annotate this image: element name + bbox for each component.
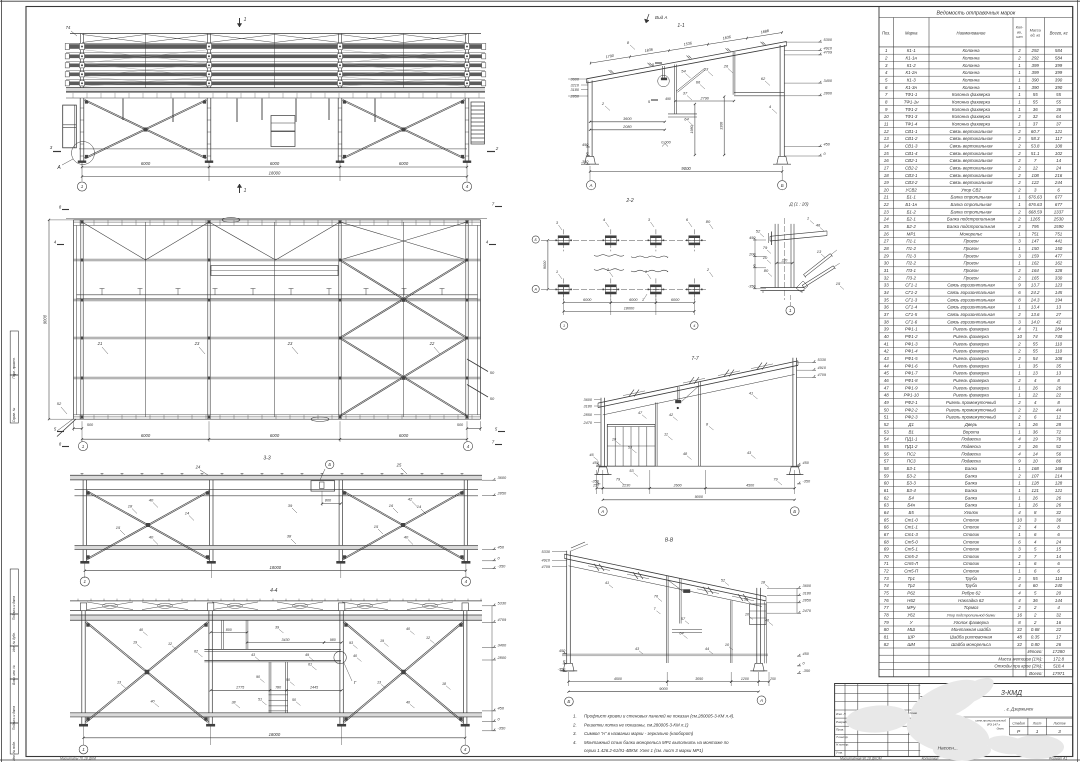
svg-text:ТФ1-1: ТФ1-1 [905,92,918,97]
svg-text:Балка подстропильная: Балка подстропильная [947,224,996,229]
svg-text:Изм. Л: Изм. Л [836,712,846,716]
svg-text:Ребро 62: Ребро 62 [962,591,981,596]
svg-text:Колонна: Колонна [962,70,980,75]
svg-text:Б3-2: Б3-2 [907,473,917,478]
svg-text:17280: 17280 [1052,649,1065,654]
svg-text:250: 250 [769,677,776,681]
svg-text:80: 80 [764,268,769,273]
svg-text:Колонна: Колонна [962,85,980,90]
svg-text:Монтажный стык балки монорельс: Монтажный стык балки монорельса МР1 выпо… [584,740,729,745]
svg-text:2: 2 [1017,158,1021,163]
svg-text:6000: 6000 [399,161,409,166]
svg-text:во,: во, [1017,30,1022,34]
svg-text:Ригель фахверка: Ригель фахверка [953,385,989,390]
svg-text:ШМ: ШМ [907,642,915,647]
svg-text:12: 12 [1033,165,1038,170]
svg-text:3-КМД: 3-КМД [1001,690,1022,697]
svg-text:ТФ1-1н: ТФ1-1н [904,100,919,105]
svg-text:Столик: Столик [963,532,980,537]
svg-text:19: 19 [133,641,137,645]
svg-text:2850: 2850 [570,94,580,98]
svg-text:584: 584 [1055,56,1063,61]
svg-text:Насосн...: Насосн... [938,746,958,752]
svg-text:Столик: Столик [963,569,980,574]
svg-text:4: 4 [465,579,468,584]
svg-text:Наименование: Наименование [957,30,987,35]
svg-text:10: 10 [1033,459,1038,464]
svg-text:37: 37 [1056,121,1061,126]
svg-text:Связь горизонтальная: Связь горизонтальная [947,297,995,302]
svg-text:17: 17 [884,165,889,170]
svg-text:49: 49 [305,653,309,657]
svg-text:4910: 4910 [542,559,551,563]
svg-text:518.4: 518.4 [1053,664,1065,669]
svg-text:159: 159 [1032,253,1040,258]
svg-text:44: 44 [884,363,889,368]
svg-text:64: 64 [884,510,889,515]
svg-text:50: 50 [490,370,495,375]
svg-text:21: 21 [883,195,889,200]
svg-text:3.: 3. [573,731,577,736]
svg-text:К1-2н: К1-2н [906,70,918,75]
svg-text:2800: 2800 [823,92,833,96]
svg-text:13.4: 13.4 [1031,305,1040,310]
svg-text:Листов: Листов [1052,721,1065,725]
svg-text:1: 1 [642,297,644,302]
svg-text:2850: 2850 [802,599,812,603]
svg-text:81: 81 [884,635,889,640]
svg-text:Связь горизонтальная: Связь горизонтальная [947,290,995,295]
svg-text:МРу: МРу [907,605,917,610]
svg-text:Н.контр.: Н.контр. [836,743,849,747]
svg-text:Ригель промежуточный: Ригель промежуточный [946,407,997,412]
svg-text:9000: 9000 [695,495,704,499]
svg-text:6000: 6000 [270,433,280,438]
svg-text:32: 32 [1056,613,1061,618]
svg-text:24: 24 [1055,539,1061,544]
svg-text:37: 37 [683,91,688,96]
svg-text:2: 2 [1017,554,1021,559]
svg-text:Столик: Столик [963,547,980,552]
svg-text:К1-1: К1-1 [907,48,916,53]
svg-text:1-1: 1-1 [677,23,684,29]
svg-text:121: 121 [1032,488,1040,493]
svg-text:477: 477 [1055,253,1063,258]
svg-text:А: А [56,165,61,171]
svg-text:Кол-: Кол- [1016,26,1024,30]
svg-text:12: 12 [884,129,889,134]
svg-text:П1-3: П1-3 [906,253,916,258]
svg-text:500: 500 [457,423,464,427]
svg-text:5300: 5300 [824,38,833,42]
svg-text:3180: 3180 [584,404,593,408]
svg-text:390: 390 [1055,85,1063,90]
svg-text:Тормоз: Тормоз [964,605,979,610]
svg-text:2: 2 [1017,378,1021,383]
svg-text:Справ. №: Справ. № [12,407,16,422]
svg-text:19: 19 [380,639,384,643]
svg-text:3300: 3300 [719,122,723,130]
svg-text:РФ1-4: РФ1-4 [905,349,918,354]
svg-text:Утв.: Утв. [836,750,843,754]
svg-text:13.6: 13.6 [1031,312,1040,317]
svg-text:П1-2: П1-2 [906,246,916,251]
svg-text:Вид А: Вид А [655,15,668,20]
svg-text:330: 330 [1055,275,1063,280]
svg-text:Б3-3: Б3-3 [907,481,917,486]
svg-text:26: 26 [1032,422,1038,427]
svg-text:Колонна фахверка: Колонна фахверка [952,92,991,97]
svg-text:78: 78 [884,613,889,618]
svg-text:-350: -350 [498,726,507,731]
svg-text:27: 27 [883,239,889,244]
svg-text:У62: У62 [907,613,915,618]
svg-text:Инв. № подл.: Инв. № подл. [12,741,16,761]
svg-text:Связь вертикальная: Связь вертикальная [950,173,994,178]
svg-text:50: 50 [490,396,495,401]
svg-text:РФ1-10: РФ1-10 [904,393,920,398]
svg-text:-350: -350 [803,669,811,673]
svg-text:Б1-1: Б1-1 [907,195,917,200]
svg-text:73: 73 [884,576,889,581]
svg-text:22: 22 [1032,407,1038,412]
svg-text:42: 42 [1056,319,1061,324]
svg-text:Б3-1: Б3-1 [907,466,917,471]
svg-text:20: 20 [1055,591,1061,596]
svg-text:450: 450 [803,652,810,656]
svg-text:РФ2-3: РФ2-3 [905,415,918,420]
svg-text:Т.контр.: Т.контр. [836,735,849,739]
svg-text:780: 780 [275,686,281,690]
svg-text:Шайба рихтовочная: Шайба рихтовочная [950,635,993,640]
svg-text:121: 121 [1055,129,1063,134]
svg-text:77: 77 [884,605,889,610]
svg-text:66: 66 [696,80,701,85]
svg-text:3210: 3210 [571,83,580,87]
svg-text:. г. Дзержинск: . г. Дзержинск [1004,707,1034,712]
svg-text:21: 21 [97,341,103,346]
svg-text:28: 28 [883,246,889,251]
svg-text:399: 399 [1032,63,1040,68]
svg-text:Балка стропильная: Балка стропильная [951,195,993,200]
svg-text:23: 23 [703,67,709,72]
svg-text:15: 15 [116,525,121,530]
svg-text:Масштабная 90.18 ДКОМ: Масштабная 90.18 ДКОМ [840,756,882,760]
svg-text:1: 1 [1036,729,1039,735]
svg-text:Ригель фахверка: Ригель фахверка [953,393,989,398]
svg-text:16: 16 [1017,613,1022,618]
svg-text:Пров.: Пров. [836,727,844,731]
svg-text:26: 26 [723,64,729,69]
svg-text:15: 15 [374,524,379,529]
svg-text:2: 2 [1017,217,1021,222]
svg-text:Колонна: Колонна [962,63,980,68]
svg-text:2790: 2790 [699,96,709,100]
svg-text:7-7: 7-7 [691,356,698,362]
svg-text:52: 52 [884,422,889,427]
svg-text:Б4: Б4 [909,495,915,500]
svg-text:22: 22 [1055,393,1061,398]
svg-text:СГ1-3: СГ1-3 [905,297,917,302]
svg-text:12: 12 [426,636,430,640]
svg-text:2775: 2775 [235,686,244,690]
svg-text:2-2: 2-2 [625,198,633,204]
svg-text:14.0: 14.0 [1031,319,1040,324]
svg-text:24.3: 24.3 [1030,297,1040,302]
svg-text:Б3-4: Б3-4 [907,488,917,493]
svg-text:54: 54 [681,69,686,74]
svg-text:79: 79 [763,245,768,250]
svg-text:Подпись и дата: Подпись и дата [12,596,16,620]
svg-text:Масса: Масса [1030,29,1041,33]
svg-text:37: 37 [1033,121,1038,126]
svg-text:МР1: МР1 [907,231,917,236]
svg-text:А: А [589,183,593,188]
svg-text:22: 22 [1032,393,1038,398]
svg-text:4: 4 [464,747,467,752]
svg-text:64: 64 [684,117,689,122]
svg-text:1: 1 [244,188,247,194]
svg-text:41: 41 [749,392,753,396]
svg-text:19: 19 [1033,437,1038,442]
svg-text:162: 162 [1032,261,1040,266]
svg-text:14: 14 [185,511,190,516]
svg-text:Накладка 62: Накладка 62 [958,598,984,603]
svg-text:Столик: Столик [963,539,980,544]
svg-text:244: 244 [1054,180,1063,185]
svg-text:4: 4 [467,444,470,449]
svg-text:26: 26 [883,231,889,236]
svg-text:Балка: Балка [965,473,978,478]
svg-text:54: 54 [1033,356,1038,361]
svg-text:2850: 2850 [497,491,507,496]
svg-text:2: 2 [1017,349,1021,354]
svg-text:82: 82 [884,642,889,647]
svg-text:27: 27 [1055,312,1061,317]
svg-text:450: 450 [749,236,756,240]
svg-text:Б2-2: Б2-2 [907,224,917,229]
svg-text:48: 48 [884,393,889,398]
svg-text:52: 52 [756,229,761,234]
svg-text:ед, кг: ед, кг [1030,33,1040,37]
svg-text:Колонна фахверка: Колонна фахверка [952,121,991,126]
svg-text:51.1: 51.1 [1031,151,1040,156]
svg-text:16: 16 [884,158,889,163]
svg-text:ПД1-1: ПД1-1 [905,437,918,442]
svg-text:450: 450 [803,461,810,465]
svg-text:Связь вертикальная: Связь вертикальная [950,158,994,163]
svg-text:В-В: В-В [665,538,674,544]
svg-text:Столик: Столик [963,561,980,566]
svg-text:СВ2-2: СВ2-2 [905,165,918,170]
svg-text:6000: 6000 [141,433,151,438]
svg-text:1: 1 [82,747,85,752]
svg-text:108: 108 [1055,143,1063,148]
svg-text:37: 37 [884,312,889,317]
svg-text:194: 194 [1055,297,1063,302]
svg-text:399: 399 [1055,63,1063,68]
svg-text:Поз.: Поз. [882,30,890,35]
svg-text:Балка: Балка [965,488,978,493]
svg-text:Балка: Балка [965,495,978,500]
svg-text:2: 2 [1017,143,1021,148]
svg-text:4709: 4709 [542,565,551,569]
svg-text:РФ1-9: РФ1-9 [905,385,918,390]
svg-text:59: 59 [884,473,889,478]
svg-text:86: 86 [1056,459,1061,464]
svg-text:15: 15 [1056,547,1061,552]
svg-text:Связь вертикальная: Связь вертикальная [950,165,994,170]
svg-text:1590: 1590 [1054,224,1064,229]
svg-text:23: 23 [883,209,889,214]
svg-text:4: 4 [466,184,469,189]
svg-text:36: 36 [1033,598,1038,603]
svg-text:6000: 6000 [583,298,592,302]
svg-text:68: 68 [884,539,889,544]
svg-text:Связь горизонтальная: Связь горизонтальная [947,312,995,317]
svg-text:5330: 5330 [818,358,827,362]
svg-text:10: 10 [1017,334,1022,339]
svg-text:51: 51 [884,415,889,420]
svg-text:Ст5-П: Ст5-П [904,569,919,574]
svg-text:32: 32 [1017,642,1022,647]
svg-text:Итого:: Итого: [1028,649,1044,654]
svg-text:2530: 2530 [1053,217,1064,222]
svg-text:26: 26 [1032,503,1038,508]
svg-text:450: 450 [593,461,600,465]
svg-text:2: 2 [1033,613,1037,618]
svg-text:24.2: 24.2 [1030,290,1040,295]
svg-text:145: 145 [1055,290,1063,295]
svg-text:18000: 18000 [624,307,635,311]
svg-text:128: 128 [1055,481,1063,486]
svg-text:Балка: Балка [965,466,978,471]
svg-text:1: 1 [244,17,247,23]
svg-text:72: 72 [1056,429,1061,434]
svg-text:14: 14 [1033,451,1038,456]
svg-text:2080: 2080 [622,125,632,129]
svg-text:4-4: 4-4 [270,588,277,594]
svg-text:48: 48 [1017,635,1022,640]
svg-text:36: 36 [1033,429,1038,434]
svg-text:Связь вертикальная: Связь вертикальная [950,136,994,141]
svg-text:16: 16 [1056,620,1061,625]
svg-text:216: 216 [1054,173,1063,178]
svg-text:Всего:: Всего: [1029,671,1043,676]
svg-text:-Змли: -Змли [996,727,1005,731]
svg-text:Уголок фахверка: Уголок фахверка [953,620,989,625]
svg-text:Б1-2: Б1-2 [907,209,917,214]
svg-text:П2-2: П2-2 [906,261,916,266]
svg-text:4709: 4709 [498,617,507,622]
svg-text:4910: 4910 [818,366,827,370]
svg-text:-350: -350 [558,667,566,671]
svg-text:42: 42 [884,349,889,354]
svg-text:Связь вертикальная: Связь вертикальная [950,143,994,148]
svg-text:0.80: 0.80 [1031,642,1040,647]
svg-text:2850: 2850 [583,413,593,417]
svg-text:ТФ1-4: ТФ1-4 [905,121,918,126]
svg-text:Копировал: Копировал [922,756,939,760]
svg-text:490: 490 [665,97,671,101]
svg-text:74: 74 [884,583,889,588]
svg-text:751: 751 [1032,231,1040,236]
svg-text:Б2-1: Б2-1 [907,217,917,222]
svg-text:К1-1н: К1-1н [906,56,918,61]
svg-text:0.35: 0.35 [1031,635,1040,640]
svg-text:13: 13 [817,249,822,254]
svg-text:Прогон: Прогон [963,268,979,273]
svg-text:2: 2 [1017,341,1021,346]
svg-text:3: 3 [1058,729,1061,735]
svg-text:584: 584 [1055,48,1063,53]
svg-text:-350: -350 [498,563,507,568]
svg-text:9000: 9000 [681,166,691,171]
svg-text:1: 1 [807,216,809,221]
svg-text:51: 51 [258,698,262,702]
svg-text:1: 1 [789,308,792,313]
svg-text:4500: 4500 [746,484,754,488]
svg-text:РФ1-7: РФ1-7 [905,371,918,376]
svg-text:Ригель фахверка: Ригель фахверка [953,334,989,339]
svg-text:60.7: 60.7 [1031,129,1040,134]
svg-text:2: 2 [1017,525,1021,530]
svg-text:26: 26 [1055,503,1061,508]
svg-text:677: 677 [1055,202,1063,207]
svg-text:Ст5-0: Ст5-0 [905,539,919,544]
svg-text:10: 10 [884,114,889,119]
svg-text:Р62: Р62 [907,591,915,596]
svg-text:58: 58 [884,466,889,471]
svg-text:74: 74 [1033,334,1038,339]
svg-text:15: 15 [884,151,889,156]
svg-text:13: 13 [884,136,889,141]
svg-text:3400: 3400 [498,642,507,647]
svg-text:5330: 5330 [498,601,507,606]
svg-text:40: 40 [404,535,409,540]
svg-text:10: 10 [763,255,768,260]
svg-text:29: 29 [883,253,889,258]
svg-text:26: 26 [1032,385,1038,390]
svg-text:2: 2 [495,146,499,151]
svg-text:42: 42 [408,497,413,502]
svg-text:Прогон: Прогон [963,246,979,251]
svg-text:26: 26 [1055,495,1061,500]
svg-text:Балка: Балка [965,503,978,508]
svg-text:164: 164 [1032,268,1040,273]
svg-text:1: 1 [82,444,85,449]
svg-text:2: 2 [1017,356,1021,361]
svg-text:УСВ2: УСВ2 [906,187,918,192]
svg-text:39: 39 [884,327,889,332]
svg-text:Прогон: Прогон [963,261,979,266]
svg-text:292: 292 [1031,48,1040,53]
svg-text:3600: 3600 [803,584,812,588]
svg-text:71: 71 [884,561,889,566]
svg-text:СВ3-1: СВ3-1 [905,173,918,178]
svg-text:16: 16 [389,503,394,508]
svg-text:Ригель фахверка: Ригель фахверка [953,327,989,332]
svg-text:П1-1: П1-1 [906,239,916,244]
svg-text:214: 214 [1054,473,1063,478]
svg-text:2: 2 [1017,180,1021,185]
svg-text:Ст5-1: Ст5-1 [905,547,919,552]
svg-text:2: 2 [1017,224,1021,229]
svg-text:2: 2 [1017,473,1021,478]
svg-text:292: 292 [1031,56,1040,61]
svg-text:795: 795 [1032,224,1040,229]
svg-text:76: 76 [1056,437,1061,442]
